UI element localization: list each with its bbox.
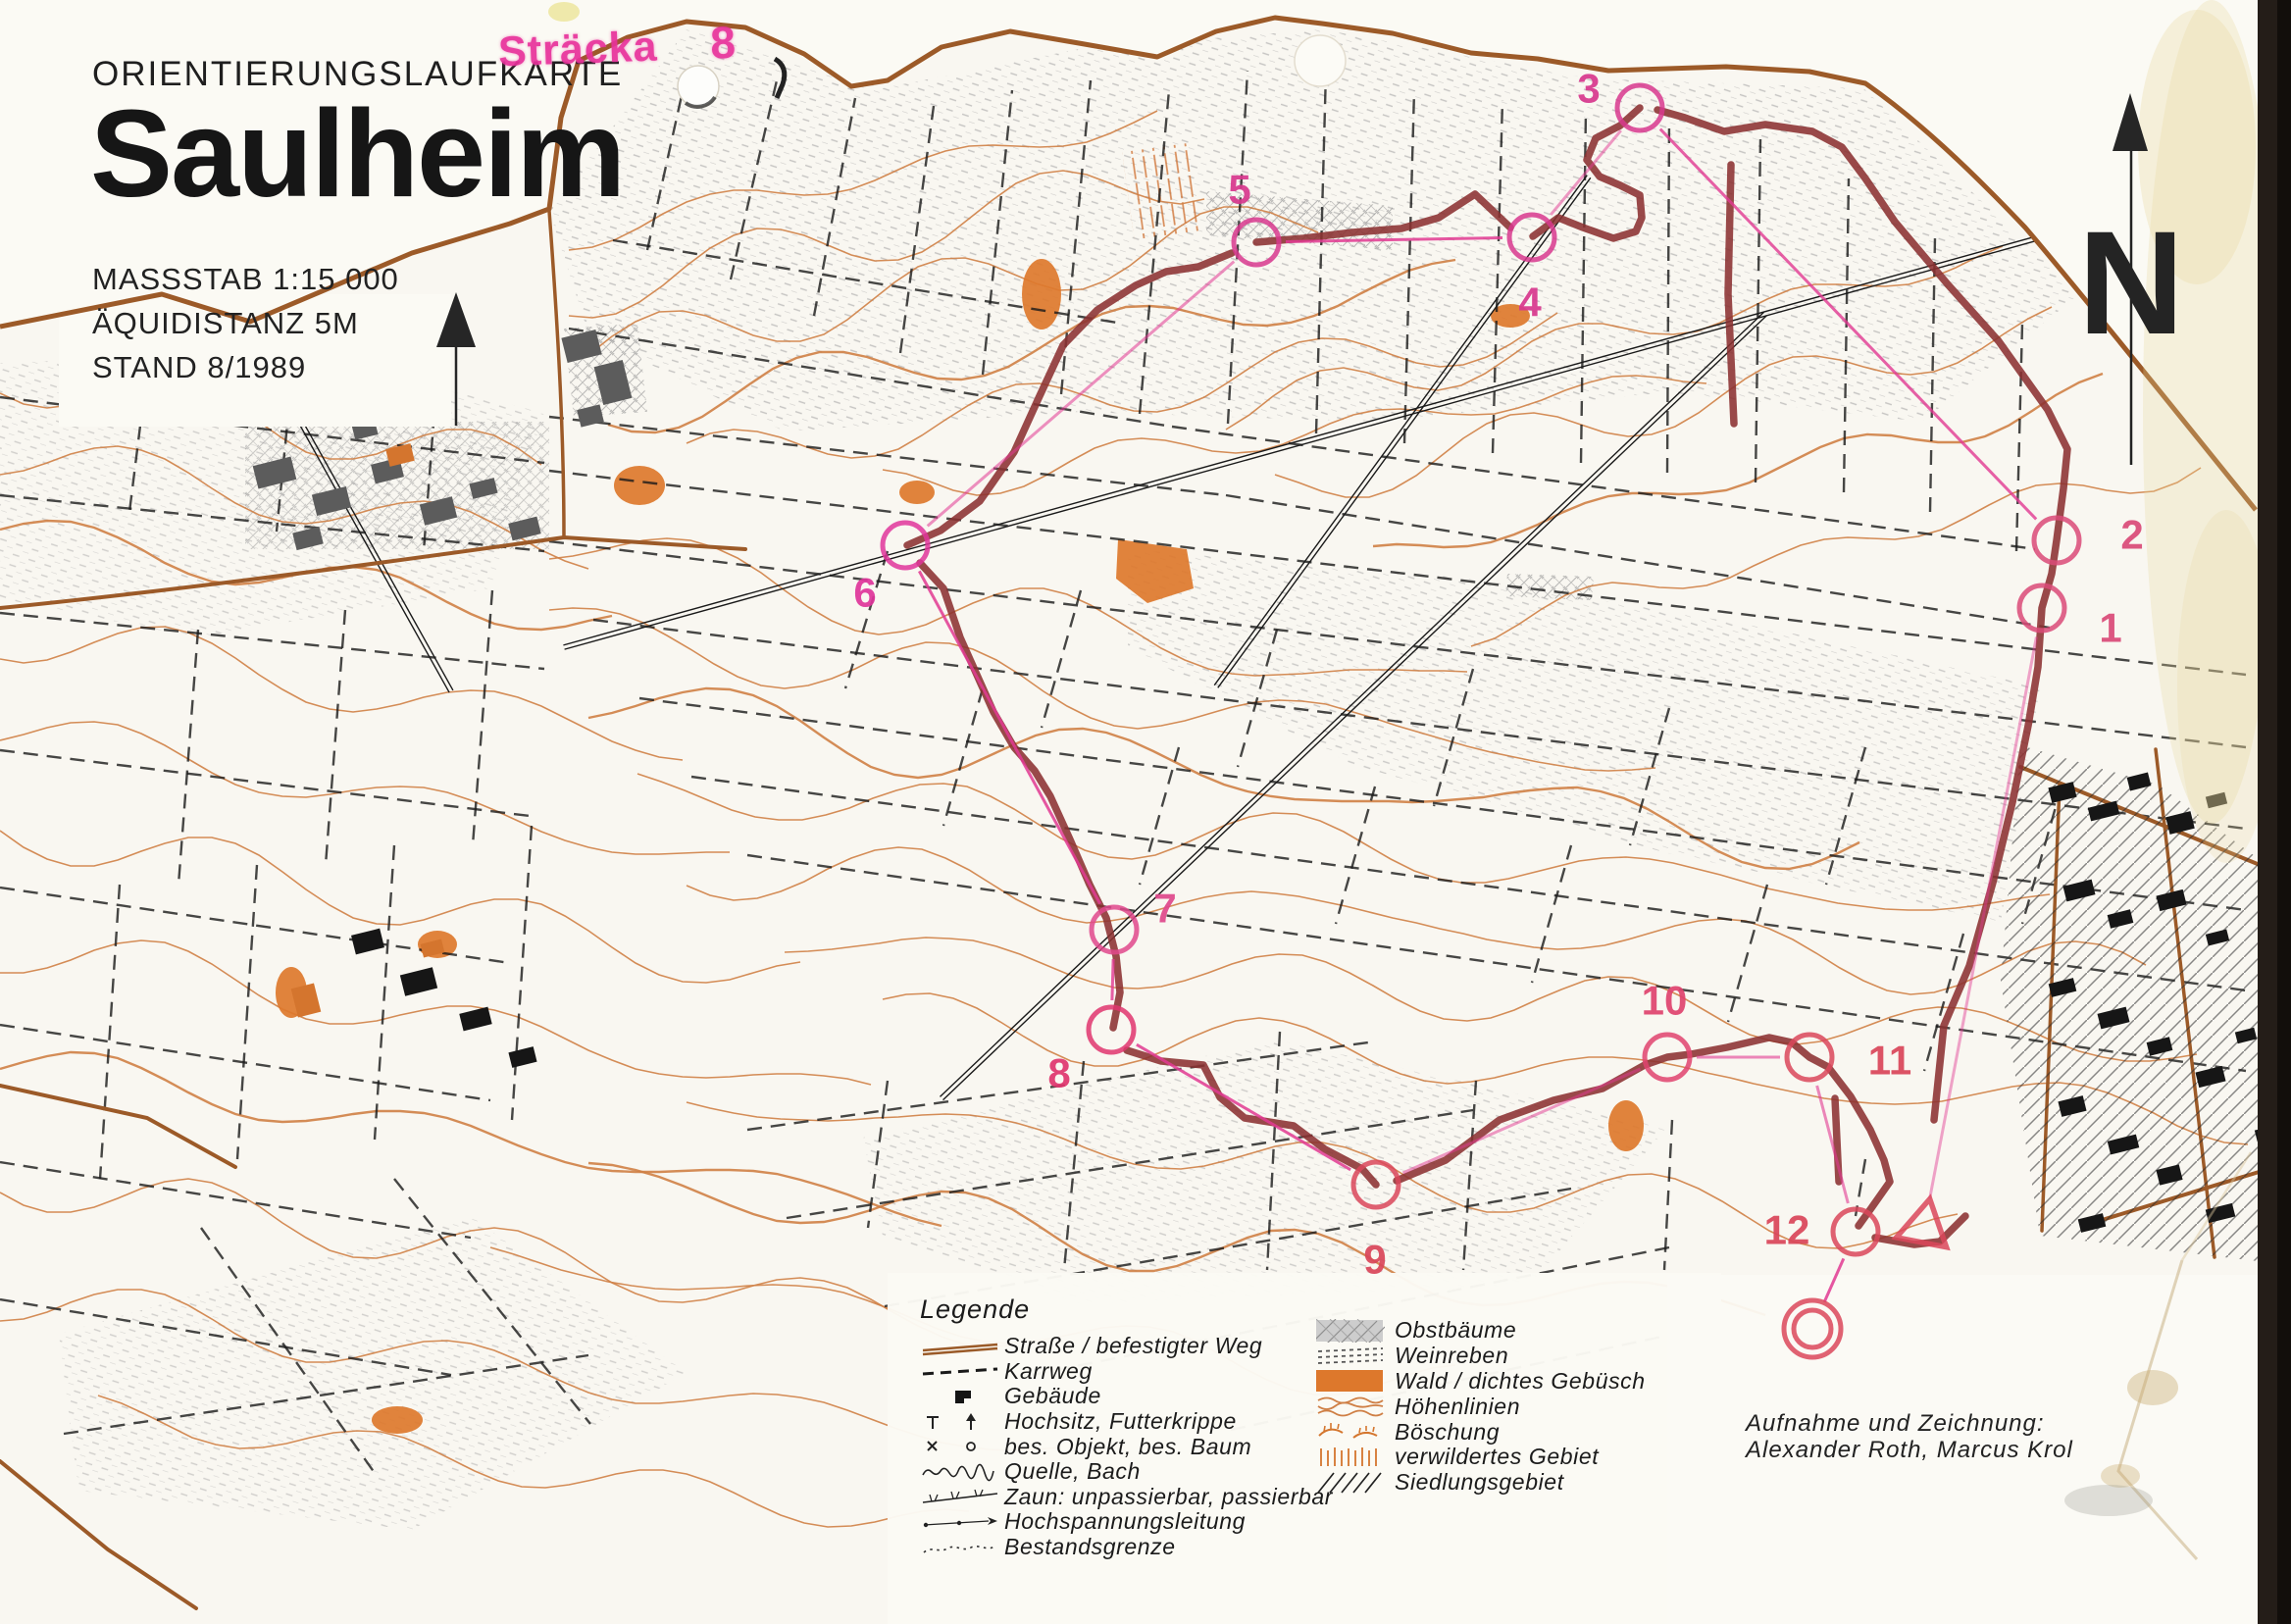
control-number-12: 12: [1764, 1207, 1810, 1253]
object-tree-icon: [920, 1436, 1004, 1457]
legend-title: Legende: [920, 1294, 1333, 1325]
control-number-11: 11: [1868, 1038, 1911, 1084]
legend-item: Zaun: unpassierbar, passierbar: [920, 1485, 1333, 1510]
legend-item: Karrweg: [920, 1359, 1333, 1385]
legend-item: Böschung: [1316, 1419, 1646, 1445]
map-canvas: 123456789101112 ORIENTIERUNGSLAUFKARTE S…: [0, 0, 2291, 1624]
punch-hole: [1295, 35, 1346, 86]
small-north-arrow-icon: [424, 282, 486, 430]
page-title: Saulheim: [90, 82, 624, 225]
vineyard-icon: [1316, 1345, 1395, 1368]
legend-item: Weinreben: [1316, 1344, 1646, 1369]
control-number-4: 4: [1518, 279, 1542, 326]
control-number-3: 3: [1577, 66, 1600, 112]
legend-item: Siedlungsgebiet: [1316, 1470, 1646, 1496]
overgrown-icon: [1316, 1446, 1395, 1469]
control-number-2: 2: [2120, 512, 2143, 558]
north-indicator: N: [2055, 80, 2212, 473]
stamp-text: Sträcka: [497, 24, 658, 77]
scale-text: MASSSTAB 1:15 000: [92, 257, 399, 301]
slope-icon: [1316, 1420, 1395, 1444]
stamp-number: 8: [709, 16, 736, 70]
legend-right: Obstbäume Weinreben Wald / dichtes Gebüs…: [1316, 1318, 1646, 1496]
overgrown-area: [1122, 143, 1202, 240]
credits-line1: Aufnahme und Zeichnung:: [1746, 1410, 2073, 1437]
legend-item: Straße / befestigter Weg: [920, 1334, 1333, 1359]
control-number-7: 7: [1153, 886, 1176, 932]
contours-icon: [1316, 1395, 1395, 1418]
legend-item: Hochspannungsleitung: [920, 1509, 1333, 1535]
course-stamp: Sträcka 8: [497, 16, 737, 76]
credits-line2: Alexander Roth, Marcus Krol: [1746, 1437, 2073, 1463]
building-icon: [920, 1386, 1004, 1407]
legend-item: Gebäude: [920, 1384, 1333, 1409]
stand-boundary-icon: [920, 1537, 1004, 1558]
powerline-icon: [920, 1511, 1004, 1533]
spring-stream-icon: [920, 1461, 1004, 1483]
legend: Legende Straße / befestigter Weg Karrweg…: [920, 1294, 1333, 1559]
leg-line-7-8: [1112, 959, 1113, 1000]
legend-item: Wald / dichtes Gebüsch: [1316, 1369, 1646, 1395]
settlement-icon: [1316, 1471, 1395, 1495]
stain: [2127, 1370, 2178, 1405]
road-icon: [920, 1336, 1004, 1357]
cart-track-icon: [920, 1360, 1004, 1382]
legend-item: Bestandsgrenze: [920, 1535, 1333, 1560]
smudge: [2064, 1485, 2153, 1516]
control-number-5: 5: [1228, 167, 1250, 213]
stain: [2101, 1464, 2140, 1488]
legend-item: verwildertes Gebiet: [1316, 1445, 1646, 1470]
control-number-8: 8: [1047, 1050, 1070, 1096]
stain: [548, 2, 580, 22]
north-arrow-head-icon: [2113, 93, 2148, 151]
map-info-block: MASSSTAB 1:15 000 ÄQUIDISTANZ 5M STAND 8…: [92, 257, 399, 389]
legend-item: Obstbäume: [1316, 1318, 1646, 1344]
control-number-10: 10: [1642, 978, 1688, 1024]
highseat-icon: [920, 1411, 1004, 1433]
legend-item: Höhenlinien: [1316, 1394, 1646, 1419]
credits: Aufnahme und Zeichnung: Alexander Roth, …: [1746, 1410, 2073, 1463]
control-number-1: 1: [2099, 605, 2121, 651]
control-number-6: 6: [853, 570, 876, 616]
forest-icon: [1316, 1369, 1395, 1393]
legend-item: Hochsitz, Futterkrippe: [920, 1409, 1333, 1435]
control-number-9: 9: [1363, 1237, 1386, 1283]
legend-item: bes. Objekt, bes. Baum: [920, 1434, 1333, 1459]
north-label: N: [2078, 200, 2184, 365]
scan-edge: [2277, 0, 2291, 1624]
orchard-icon: [1316, 1319, 1395, 1343]
edition-text: STAND 8/1989: [92, 345, 399, 389]
equidistance-text: ÄQUIDISTANZ 5M: [92, 301, 399, 345]
legend-item: Quelle, Bach: [920, 1459, 1333, 1485]
fence-icon: [920, 1486, 1004, 1507]
